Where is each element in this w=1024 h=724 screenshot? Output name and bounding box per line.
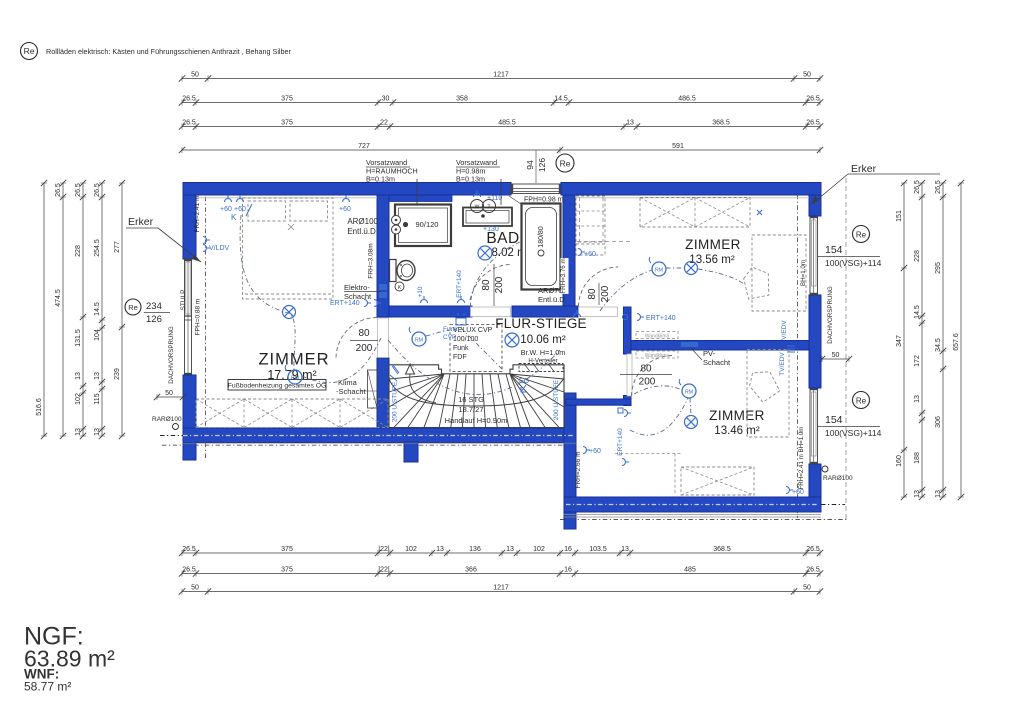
svg-text:50: 50: [803, 584, 811, 591]
svg-text:|22|: |22|: [378, 566, 390, 573]
svg-text:115: 115: [94, 393, 101, 404]
svg-text:102: 102: [405, 546, 417, 553]
svg-text:13.46 m²: 13.46 m²: [714, 425, 760, 437]
svg-text:375: 375: [281, 546, 293, 553]
svg-text:200: 200: [600, 285, 611, 302]
svg-text:26.5: 26.5: [806, 566, 820, 573]
svg-text:Re: Re: [856, 397, 867, 406]
svg-text:EG: EG: [519, 378, 529, 385]
svg-text:254.5: 254.5: [94, 239, 101, 257]
svg-text:657.6: 657.6: [953, 333, 960, 351]
svg-text:ERT+140: ERT+140: [617, 428, 624, 456]
svg-text:13: 13: [94, 428, 101, 436]
svg-text:228: 228: [914, 250, 921, 262]
svg-text:TV/EDV: TV/EDV: [779, 352, 786, 376]
svg-text:80: 80: [587, 288, 598, 300]
svg-text:486.5: 486.5: [678, 95, 696, 102]
svg-text:Entl.ü.D: Entl.ü.D: [538, 295, 565, 304]
svg-text:ERT+140: ERT+140: [330, 300, 360, 307]
svg-text:+60: +60: [234, 206, 246, 213]
svg-text:366: 366: [465, 566, 477, 573]
svg-text:100(VSG)+114: 100(VSG)+114: [825, 258, 882, 268]
svg-text:10.06 m²: 10.06 m²: [520, 334, 566, 346]
svg-text:Handlauf H=0.90m: Handlauf H=0.90m: [445, 416, 508, 425]
svg-text:+60: +60: [220, 206, 232, 213]
svg-text:RARØ100: RARØ100: [152, 416, 182, 423]
svg-text:474.5: 474.5: [55, 289, 62, 307]
svg-text:+60: +60: [339, 206, 351, 213]
svg-text:DACHVORSPRUNG: DACHVORSPRUNG: [827, 286, 834, 344]
svg-text:200 U.STUFE: 200 U.STUFE: [392, 381, 399, 422]
svg-text:13: 13: [436, 546, 444, 553]
svg-text:13: 13: [935, 490, 942, 498]
svg-text:154: 154: [825, 244, 843, 256]
svg-text:V/EDV: V/EDV: [781, 320, 788, 340]
svg-text:RM: RM: [291, 376, 299, 382]
svg-text:13: 13: [621, 546, 629, 553]
svg-text:16: 16: [564, 566, 572, 573]
svg-text:160: 160: [896, 455, 903, 467]
svg-text:+110: +110: [487, 195, 502, 202]
svg-text:Entl.ü.D.: Entl.ü.D.: [347, 227, 378, 236]
svg-text:200: 200: [494, 276, 505, 293]
svg-text:T: T: [487, 205, 490, 211]
svg-text:B=0.13m: B=0.13m: [456, 175, 485, 184]
svg-text:Wandklima: Wandklima: [645, 334, 670, 340]
svg-text:Klima: Klima: [338, 378, 358, 387]
svg-text:34.5: 34.5: [935, 338, 942, 352]
svg-text:FDF: FDF: [453, 354, 467, 361]
svg-text:14.5: 14.5: [914, 305, 921, 319]
svg-text:13: 13: [75, 372, 82, 380]
svg-text:50: 50: [191, 71, 199, 78]
svg-text:50: 50: [165, 390, 173, 397]
svg-text:Re: Re: [128, 303, 138, 312]
svg-text:ZIMMER: ZIMMER: [709, 408, 765, 423]
svg-text:VELUX CVP: VELUX CVP: [453, 327, 493, 334]
svg-text:FRH=3.08m: FRH=3.08m: [368, 243, 375, 278]
svg-text:ARØ70: ARØ70: [538, 286, 563, 295]
svg-text:516.6: 516.6: [36, 398, 43, 416]
svg-text:FRH=2.41 m BH=1.0m: FRH=2.41 m BH=1.0m: [798, 427, 805, 490]
svg-text:1217: 1217: [493, 71, 509, 78]
svg-text:104: 104: [94, 329, 101, 341]
svg-text:FRH=3.76 m: FRH=3.76 m: [560, 258, 567, 293]
svg-text:FRH=2.66 m: FRH=2.66 m: [575, 451, 582, 488]
svg-text:RM: RM: [415, 338, 423, 344]
svg-text:13: 13: [506, 546, 514, 553]
svg-text:RM: RM: [685, 390, 693, 396]
svg-text:Funk: Funk: [443, 326, 458, 333]
svg-text:|22|: |22|: [378, 546, 390, 553]
svg-text:Elektro-: Elektro-: [344, 283, 370, 292]
svg-text:Rollläden elektrisch: Kästen u: Rollläden elektrisch: Kästen und Führung…: [46, 47, 292, 56]
svg-text:Re: Re: [560, 159, 571, 169]
svg-text:100/100: 100/100: [453, 336, 478, 343]
svg-text:FPH=0.88 m: FPH=0.88 m: [195, 299, 202, 336]
svg-text:102: 102: [533, 546, 545, 553]
svg-text:295: 295: [935, 262, 942, 274]
svg-text:CVP: CVP: [443, 334, 456, 341]
svg-text:50: 50: [803, 71, 811, 78]
svg-text:591: 591: [672, 143, 684, 150]
svg-text:80: 80: [358, 328, 370, 339]
svg-text:PV-: PV-: [703, 349, 716, 358]
svg-text:375: 375: [281, 119, 293, 126]
svg-text:13: 13: [914, 490, 921, 498]
svg-text:200: 200: [639, 377, 656, 388]
svg-text:368.5: 368.5: [712, 119, 730, 126]
svg-text:154: 154: [825, 414, 843, 426]
svg-text:90/120: 90/120: [416, 220, 439, 229]
svg-text:727: 727: [358, 143, 370, 150]
svg-text:26.5: 26.5: [806, 95, 820, 102]
svg-text:ZIMMER: ZIMMER: [685, 237, 741, 252]
svg-text:Erker: Erker: [851, 163, 877, 175]
svg-text:30: 30: [382, 95, 390, 102]
svg-text:26.5: 26.5: [182, 119, 196, 126]
svg-text:ERT+140: ERT+140: [646, 315, 676, 322]
svg-text:26.5: 26.5: [55, 183, 62, 197]
svg-text:368.5: 368.5: [713, 546, 731, 553]
svg-text:Funk: Funk: [453, 345, 469, 352]
svg-text:B=0.13m: B=0.13m: [366, 175, 395, 184]
svg-text:126: 126: [537, 158, 547, 172]
svg-text:26.5: 26.5: [182, 566, 196, 573]
svg-text:Fußbodenheizung gesamtes OG: Fußbodenheizung gesamtes OG: [228, 383, 327, 390]
svg-text:RM: RM: [655, 268, 663, 274]
svg-text:80: 80: [481, 279, 492, 291]
svg-text:102: 102: [75, 393, 82, 405]
svg-text:485: 485: [684, 566, 696, 573]
svg-text:K: K: [231, 213, 237, 222]
svg-text:V/LDV: V/LDV: [209, 245, 230, 252]
svg-text:234: 234: [146, 301, 162, 312]
svg-text:18.7/27: 18.7/27: [458, 405, 483, 414]
svg-text:13: 13: [75, 428, 82, 436]
svg-text:375: 375: [281, 95, 293, 102]
svg-text:26.5: 26.5: [182, 546, 196, 553]
svg-text:26.5: 26.5: [935, 180, 942, 194]
svg-text:94: 94: [525, 160, 535, 170]
svg-text:26.5: 26.5: [75, 183, 82, 197]
svg-text:172: 172: [914, 355, 921, 367]
svg-text:26.5: 26.5: [94, 183, 101, 197]
svg-text:22: 22: [380, 119, 388, 126]
svg-text:50: 50: [832, 352, 840, 359]
svg-text:FRH=2.41 m: FRH=2.41 m: [194, 195, 201, 232]
svg-text:BH=1.0m: BH=1.0m: [800, 260, 807, 286]
svg-text:13: 13: [94, 372, 101, 380]
svg-text:ERT+140: ERT+140: [456, 270, 463, 298]
svg-text:Schacht: Schacht: [703, 358, 731, 367]
svg-text:200: 200: [356, 343, 373, 354]
svg-text:FPH=0.98 m: FPH=0.98 m: [524, 197, 564, 204]
svg-text:Br.W. H=1.0m: Br.W. H=1.0m: [521, 348, 566, 357]
svg-text:100(VSG)+114: 100(VSG)+114: [825, 428, 882, 438]
svg-text:228: 228: [75, 245, 82, 257]
svg-text:277: 277: [114, 241, 121, 253]
svg-text:485.5: 485.5: [498, 119, 516, 126]
svg-text:Wandklima: Wandklima: [645, 353, 670, 359]
svg-text:+60: +60: [589, 448, 601, 455]
svg-text:Re: Re: [24, 46, 35, 56]
svg-text:200 U.STUFE: 200 U.STUFE: [553, 379, 560, 420]
svg-text:375: 375: [281, 566, 293, 573]
svg-text:26.5: 26.5: [806, 119, 820, 126]
svg-text:239: 239: [114, 368, 121, 380]
svg-text:16: 16: [564, 546, 572, 553]
svg-text:58.77 m²: 58.77 m²: [24, 680, 71, 694]
svg-text:358: 358: [456, 95, 468, 102]
svg-text:13: 13: [626, 119, 634, 126]
svg-text:+130: +130: [483, 226, 499, 233]
svg-text:FLUR-STIEGE: FLUR-STIEGE: [495, 316, 586, 331]
svg-text:14.5: 14.5: [554, 95, 568, 102]
svg-text:26.5: 26.5: [914, 180, 921, 194]
svg-text:151: 151: [896, 210, 903, 222]
svg-text:131.5: 131.5: [75, 329, 82, 347]
svg-text:103.5: 103.5: [589, 546, 607, 553]
svg-text:180/80: 180/80: [538, 226, 545, 248]
svg-text:DACHVORSPRUNG: DACHVORSPRUNG: [168, 326, 175, 384]
svg-text:14.5: 14.5: [94, 302, 101, 316]
svg-text:50: 50: [191, 584, 199, 591]
svg-text:136: 136: [469, 546, 481, 553]
svg-text:13: 13: [914, 395, 921, 403]
svg-text:306: 306: [935, 416, 942, 428]
svg-text:26.5: 26.5: [806, 546, 820, 553]
svg-text:Re: Re: [856, 231, 867, 240]
svg-text:RARØ100: RARØ100: [823, 475, 853, 482]
svg-text:W: W: [475, 205, 480, 211]
svg-text:Erker: Erker: [128, 216, 154, 228]
svg-text:STULP: STULP: [180, 290, 187, 311]
svg-text:1217: 1217: [493, 584, 509, 591]
svg-text:126: 126: [146, 314, 162, 325]
svg-text:16 STG: 16 STG: [458, 395, 484, 404]
svg-text:-Schacht: -Schacht: [336, 387, 367, 396]
svg-text:ARØ100: ARØ100: [347, 217, 378, 226]
svg-text:188: 188: [914, 452, 921, 464]
svg-text:+10: +10: [417, 286, 424, 297]
svg-text:26.5: 26.5: [182, 95, 196, 102]
svg-text:+60: +60: [584, 251, 596, 258]
svg-text:347: 347: [896, 335, 903, 347]
svg-text:80: 80: [640, 364, 652, 375]
svg-text:+60: +60: [792, 489, 804, 496]
